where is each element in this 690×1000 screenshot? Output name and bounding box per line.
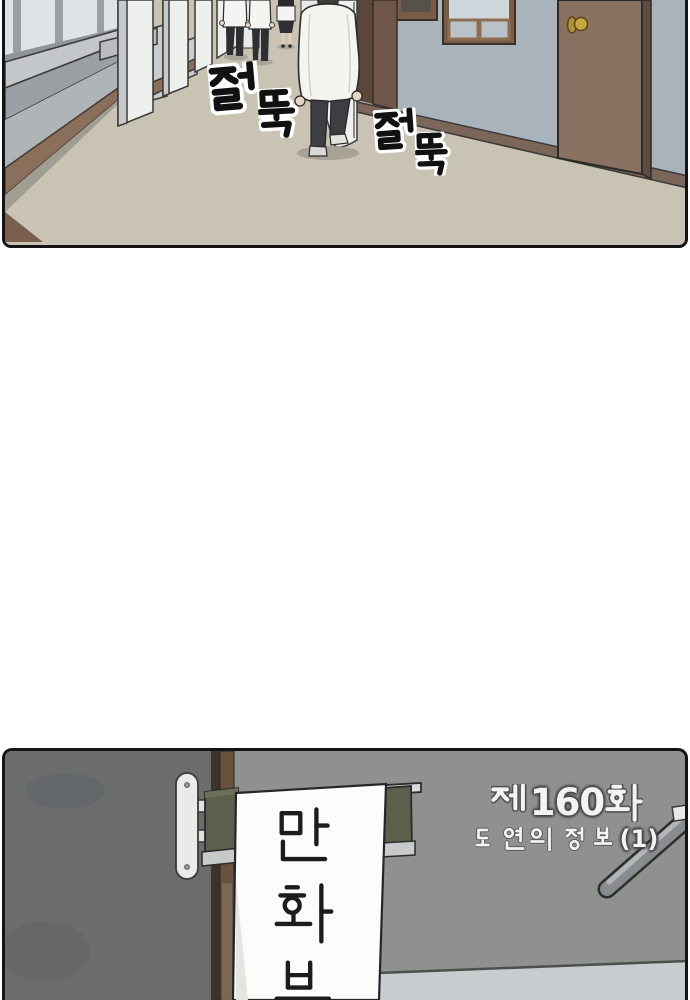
episode-title: 제 160 화 xyxy=(491,784,643,822)
episode-subtitle-tail: (1) xyxy=(620,826,659,852)
banner-char-man xyxy=(273,807,335,869)
subtitle-char-do xyxy=(476,827,501,852)
hallway-scene-art xyxy=(5,0,688,242)
subtitle-char-bo xyxy=(593,827,618,852)
wall-shading xyxy=(25,773,105,809)
subtitle-char-ui xyxy=(530,827,555,852)
banner-char-bu xyxy=(273,959,335,1000)
panel-club-sign: 만화부 제 160 화 xyxy=(2,748,688,1000)
webtoon-page: 절뚝 절뚝 xyxy=(0,0,690,1000)
doorframe-panel xyxy=(222,883,232,1000)
episode-subtitle: 도연의 정보 (1) xyxy=(476,826,659,852)
middle-doorframe xyxy=(373,0,397,110)
panel-hallway: 절뚝 절뚝 xyxy=(2,0,688,248)
banner-text-art: 만화부 xyxy=(273,807,335,1000)
sfx-char-ttuk xyxy=(415,131,461,177)
episode-number: 160 xyxy=(530,784,604,822)
episode-title-block: 제 160 화 도연의 정보 (1) xyxy=(467,784,667,852)
doorframe-edge xyxy=(211,751,220,1000)
title-char-je xyxy=(491,784,529,822)
title-char-hwa xyxy=(605,784,643,822)
sfx-char-ttuk xyxy=(257,87,310,140)
subtitle-char-yeon xyxy=(503,827,528,852)
subtitle-char-jeong xyxy=(566,827,591,852)
banner-char-hwa xyxy=(273,883,335,945)
classroom-window-small xyxy=(395,0,437,20)
classroom-window-large xyxy=(443,0,515,44)
middle-doorframe-edge xyxy=(357,0,373,104)
sign-end-cap xyxy=(380,841,415,857)
